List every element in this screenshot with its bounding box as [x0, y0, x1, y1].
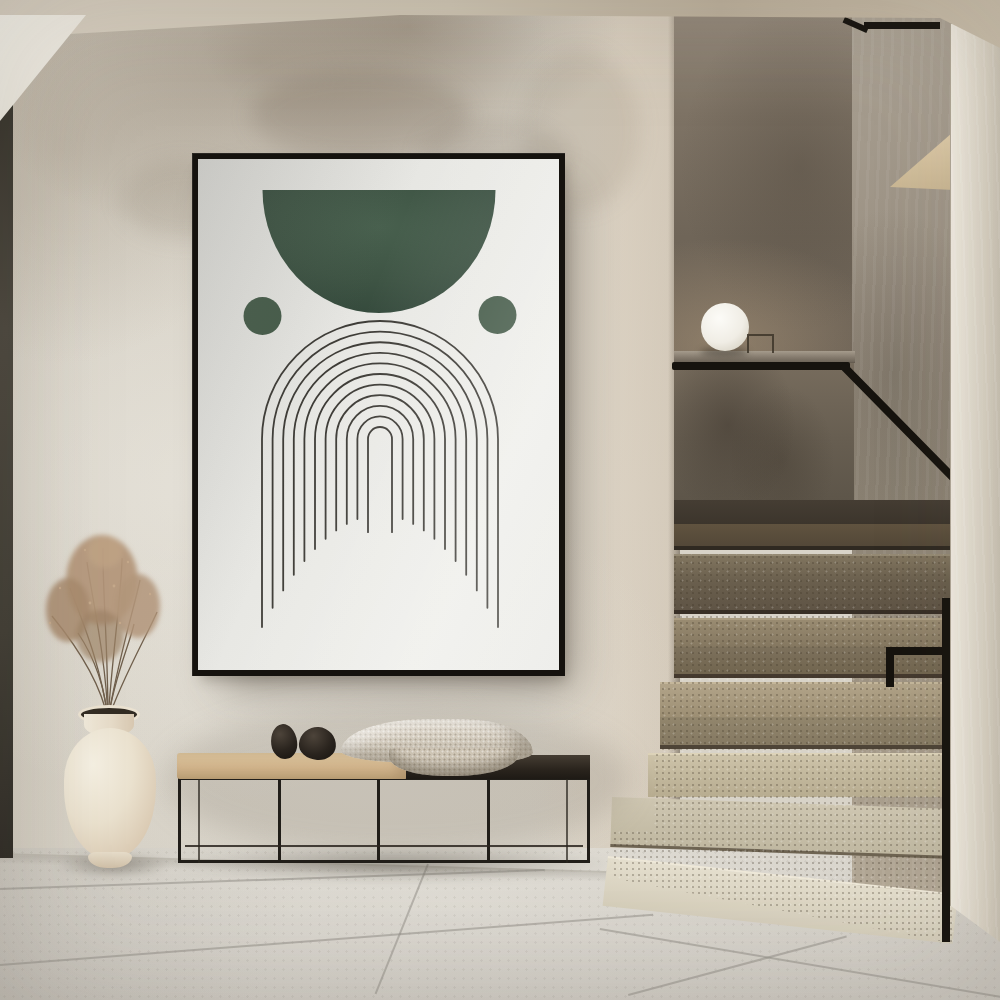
- railing-bracket: [886, 647, 946, 655]
- bench-frame-divider: [278, 777, 281, 863]
- vase: [64, 700, 156, 872]
- green-dot-left: [244, 297, 282, 335]
- stair-tread: [674, 579, 955, 614]
- stair-tread: [660, 717, 955, 749]
- alcove-back-wall: [674, 12, 854, 357]
- bench-back-leg: [566, 777, 568, 863]
- stair-step: [660, 682, 955, 717]
- foreground-column: [950, 24, 1000, 942]
- stair-step: [674, 500, 955, 524]
- hallway-scene: [0, 0, 1000, 1000]
- bench-back-bar: [185, 845, 583, 847]
- left-dark-edge: [0, 100, 13, 858]
- sphere-lamp: [701, 303, 749, 351]
- poster-graphic: [198, 159, 559, 670]
- bench-metal-frame: [178, 777, 590, 863]
- stair-step: [674, 524, 955, 550]
- grass-plumes: [46, 535, 160, 662]
- vase-foot: [88, 852, 132, 868]
- stair-step: [648, 753, 955, 797]
- bench-back-leg: [198, 777, 200, 863]
- stair-step: [674, 554, 955, 579]
- bench-frame-divider: [487, 777, 490, 863]
- dried-grass: [30, 528, 180, 723]
- poster-art: [198, 159, 559, 670]
- bench-frame-divider: [377, 777, 380, 863]
- lamp-stand: [747, 334, 774, 353]
- handrail-horizontal: [672, 362, 850, 370]
- green-dot-right: [479, 296, 517, 334]
- railing-stub: [886, 647, 894, 687]
- stair-half-wall: [674, 362, 854, 502]
- green-dome: [263, 190, 496, 313]
- stair-step: [674, 618, 955, 647]
- upper-handrail: [864, 22, 940, 29]
- framed-poster: [192, 153, 565, 676]
- arch-lines: [262, 321, 498, 627]
- vase-body: [64, 728, 156, 858]
